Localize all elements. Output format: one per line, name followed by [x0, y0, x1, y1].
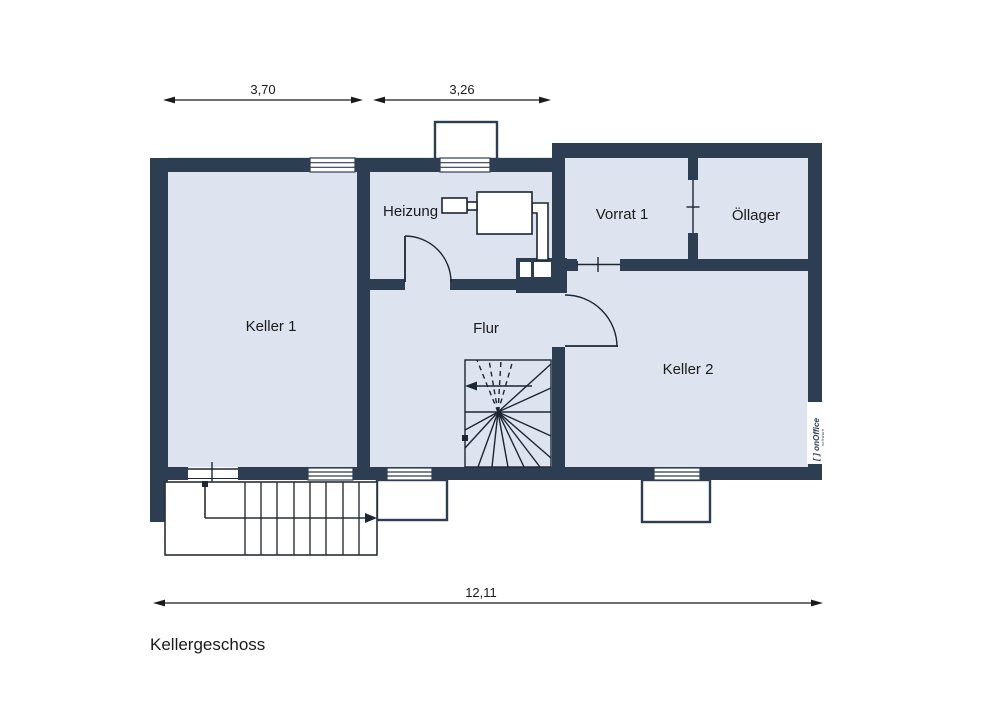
dimension-value-top-left: 3,70 [250, 82, 275, 97]
dimension-bottom: 12,11 [153, 585, 823, 606]
vendor-logo-subtitle: software [821, 428, 825, 446]
exterior-staircase [165, 481, 377, 555]
wall-heizung-flur-right [450, 279, 517, 290]
window-bottom-flur [387, 468, 432, 480]
wall-flur-keller2 [552, 347, 565, 467]
boiler-body [477, 192, 532, 234]
label-heizung: Heizung [383, 203, 438, 220]
wall-vorrat-oellager-bottom [620, 259, 808, 271]
wall-heizung-vorrat [552, 143, 565, 258]
floor-plan-canvas: Keller 1 Heizung Flur Vorrat 1 Öllager K… [0, 0, 1000, 706]
window-bottom-keller1 [308, 468, 353, 480]
stair-start-marker [462, 435, 468, 441]
window-top-keller1 [310, 158, 355, 172]
dimension-top-left: 3,70 [163, 82, 363, 103]
label-keller2: Keller 2 [663, 361, 714, 378]
wall-top-right-section [552, 143, 822, 158]
wall-heizung-flur-left [370, 279, 405, 290]
label-vorrat1: Vorrat 1 [596, 206, 649, 223]
floor-title: Kellergeschoss [150, 635, 265, 654]
wall-vorrat-oellager-top-seg [688, 158, 698, 180]
dimension-value-bottom: 12,11 [465, 585, 497, 600]
chimney-flue-1 [520, 262, 531, 277]
light-well-top [435, 122, 497, 159]
wall-bottom-exterior [150, 467, 822, 480]
floor-plan-page: Keller 1 Heizung Flur Vorrat 1 Öllager K… [0, 0, 1000, 706]
chimney-flue-2 [534, 262, 551, 277]
boiler-connector [467, 202, 477, 210]
vendor-logo-text: [ ] onOffice [812, 417, 821, 462]
wall-top-left-section [150, 158, 562, 172]
light-well-bottom-mid [377, 480, 447, 520]
dimension-value-top-right: 3,26 [449, 82, 474, 97]
dimension-top-right: 3,26 [373, 82, 551, 103]
boiler-burner [442, 198, 467, 213]
wall-keller1-divider [357, 158, 370, 467]
label-oellager: Öllager [732, 206, 780, 224]
vendor-logo: [ ] onOffice software [807, 402, 825, 464]
light-well-bottom-right [642, 480, 710, 522]
window-bottom-keller2 [654, 468, 700, 480]
label-flur: Flur [473, 320, 499, 337]
exterior-stair-start-marker [202, 481, 208, 487]
label-keller1: Keller 1 [246, 318, 297, 335]
wall-vorrat-oellager-bottom-seg [688, 233, 698, 259]
window-top-heizung [440, 158, 490, 172]
